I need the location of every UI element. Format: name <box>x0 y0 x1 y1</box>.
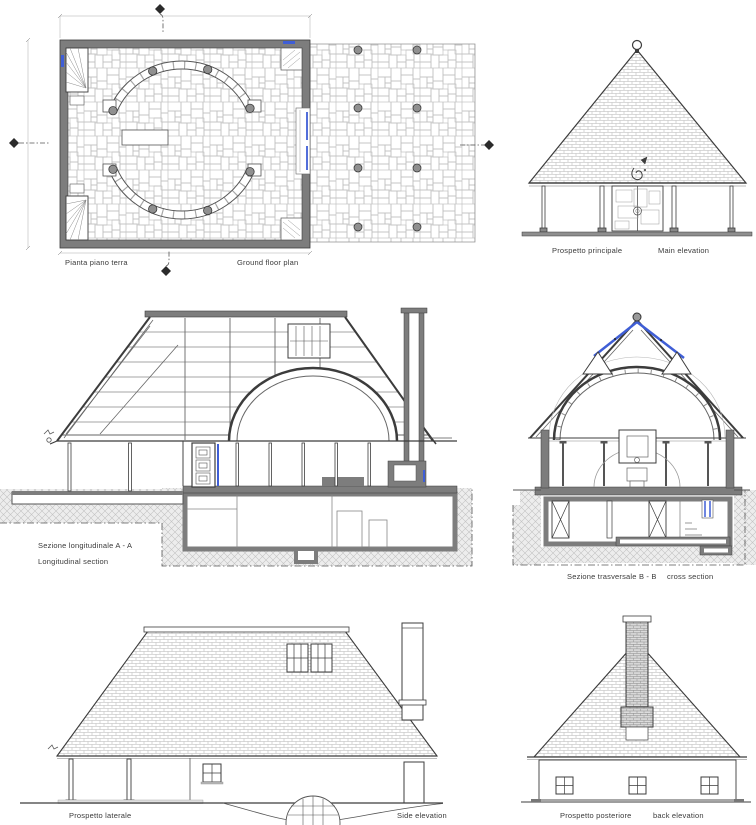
main-elevation-drawing <box>522 41 752 237</box>
earth-hatch <box>520 490 541 565</box>
roof-top-bar <box>145 311 347 317</box>
corner-room-bottom-right <box>281 218 302 240</box>
plan-label-it: Pianta piano terra <box>65 258 128 267</box>
roof <box>57 631 437 756</box>
longitudinal-section-label-it: Sezione longitudinale A - A <box>38 541 132 550</box>
wall-left <box>541 430 549 488</box>
basement-pit <box>296 549 316 562</box>
panelled-door <box>192 443 218 487</box>
x-brace-panels <box>552 501 666 538</box>
finial-stem <box>635 49 639 53</box>
plan-label-en: Ground floor plan <box>237 258 298 267</box>
floor-slab <box>535 487 742 495</box>
section-marker-b-bottom-icon <box>161 250 171 276</box>
spiral-stair-bottom <box>66 196 88 240</box>
cross-section-drawing <box>513 313 756 565</box>
wall-niche <box>70 96 84 105</box>
longitudinal-section-label-en: Longitudinal section <box>38 557 108 566</box>
wall-niche <box>70 184 84 193</box>
cross-section-label-it: Sezione trasversale B - B <box>567 572 657 581</box>
side-elevation-label-it: Prospetto laterale <box>69 811 131 820</box>
chimney <box>399 623 426 720</box>
central-feature <box>122 130 168 145</box>
cross-section-label-en: cross section <box>667 572 713 581</box>
main-elevation-label-en: Main elevation <box>658 246 709 255</box>
section-marker-a-left-icon <box>9 138 50 148</box>
side-elevation-drawing <box>20 623 443 825</box>
ground-floor-plan-drawing <box>9 4 494 276</box>
back-elevation-label-en: back elevation <box>653 811 704 820</box>
chimney <box>621 616 653 740</box>
roof <box>529 50 746 183</box>
gutter-ornament-icon <box>47 438 51 442</box>
right-wall-opening <box>296 108 310 174</box>
wall-window <box>201 764 223 784</box>
plinth <box>322 477 364 486</box>
foundation-foot <box>734 799 744 802</box>
main-elevation-label-it: Prospetto principale <box>552 246 622 255</box>
architectural-drawing-sheet: Pianta piano terra Ground floor plan Pro… <box>0 0 756 825</box>
weathervane-icon <box>48 745 58 749</box>
skylight <box>288 324 330 358</box>
corner-room-top-right <box>281 48 302 70</box>
door <box>404 762 424 803</box>
terrace-paving <box>310 44 475 242</box>
back-elevation-drawing <box>521 616 751 802</box>
porch-columns <box>66 759 134 803</box>
back-elevation-label-it: Prospetto posteriore <box>560 811 632 820</box>
basement <box>185 494 455 549</box>
drawing-canvas <box>0 0 756 825</box>
roof-ridge-cap <box>144 627 349 632</box>
weathervane-icon <box>44 430 54 434</box>
dome-section <box>554 367 720 440</box>
entrance-door <box>612 186 663 231</box>
foundation-foot <box>531 799 541 802</box>
longitudinal-section-drawing <box>0 308 472 566</box>
door-marker-blue <box>61 55 64 67</box>
section-marker-b-top-icon <box>155 4 165 32</box>
side-elevation-label-en: Side elevation <box>397 811 447 820</box>
door-marker-blue <box>283 41 295 44</box>
terrace-slab-top <box>12 491 183 495</box>
roof-finial <box>633 313 641 321</box>
ground-strip <box>522 232 752 236</box>
lightwell-window <box>286 796 340 825</box>
wall-right <box>726 430 734 488</box>
spiral-stair-top <box>66 48 88 92</box>
roof-finial <box>633 41 642 50</box>
basement-window-blue <box>702 500 713 518</box>
